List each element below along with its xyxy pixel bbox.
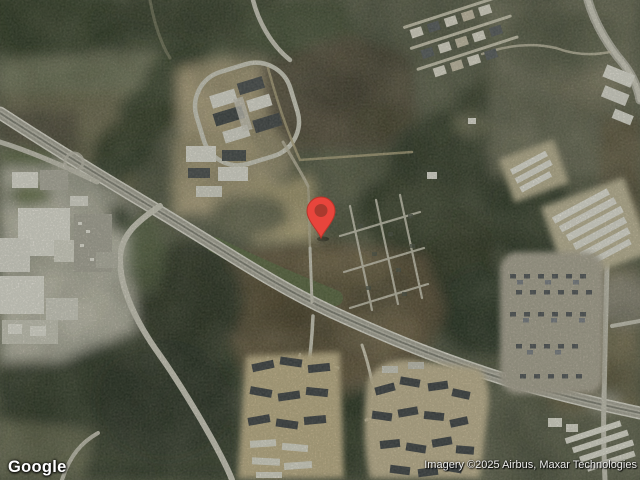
pin-shadow <box>317 237 329 242</box>
pin-inner-dot <box>315 204 328 217</box>
satellite-imagery <box>0 0 640 480</box>
imagery-attribution: Imagery ©2025 Airbus, Maxar Technologies <box>424 459 637 471</box>
google-logo[interactable]: Google <box>8 458 67 477</box>
map-canvas[interactable]: Google Imagery ©2025 Airbus, Maxar Techn… <box>0 0 640 480</box>
